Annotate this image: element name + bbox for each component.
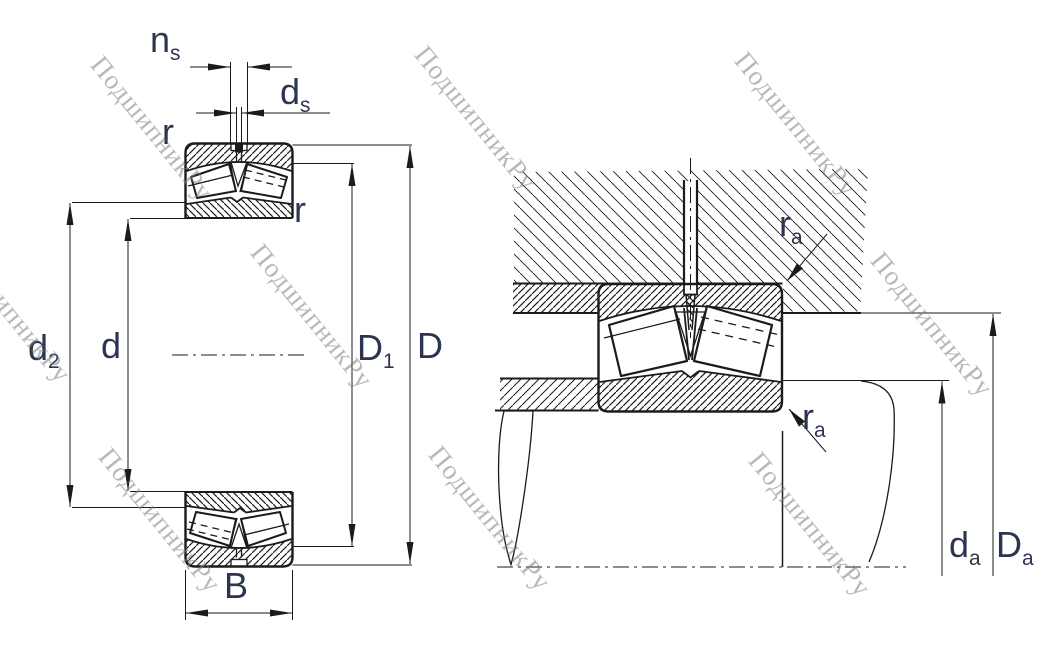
right-view [495,158,1001,576]
bearing-drawing [0,0,1050,650]
dim-label-Da: Da [996,527,1034,563]
dim-label-d2: d2 [28,330,60,366]
dim-label-D1: D1 [357,330,395,366]
bearing-drawing-page: ns ds r r d2 d D1 D B ra ra da Da Подшип… [0,0,1050,650]
dim-label-da: da [949,527,981,563]
dim-label-r-outer: r [162,114,174,150]
shaft-fillet-break [861,381,894,562]
dim-label-ds: ds [280,74,310,110]
left-bottom-section [186,492,293,567]
dim-label-ra-shaft: ra [802,399,826,435]
cover-ring [513,285,599,313]
dim-label-r-bore: r [294,192,306,228]
dim-label-B: B [224,568,248,604]
dim-label-ns: ns [150,22,180,58]
dim-label-D: D [417,328,443,364]
dim-label-d: d [101,328,121,364]
shaft-shoulder-break [499,411,533,565]
right-bearing-section [599,284,783,412]
left-top-section [186,144,293,219]
dim-label-ra-housing: ra [779,206,803,242]
